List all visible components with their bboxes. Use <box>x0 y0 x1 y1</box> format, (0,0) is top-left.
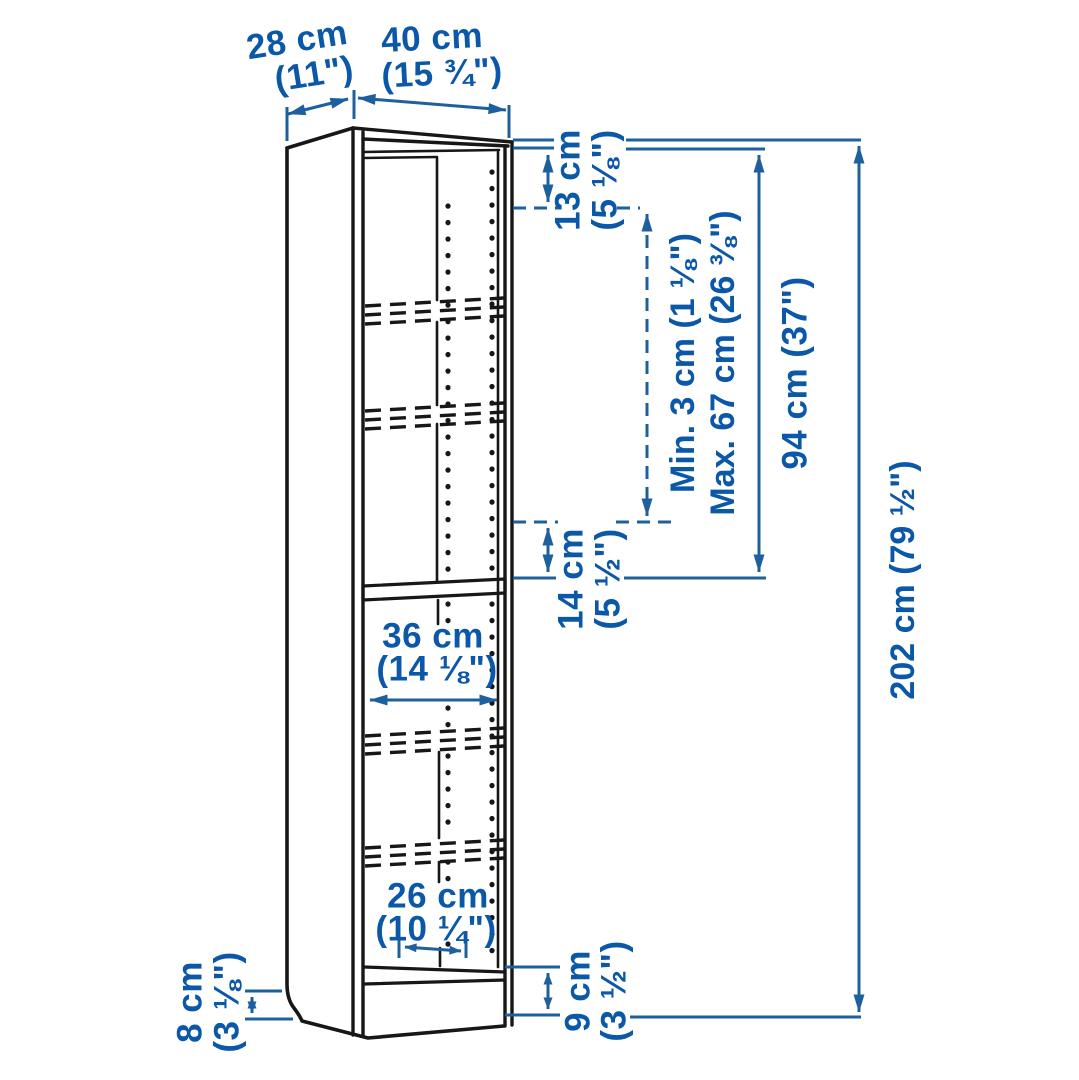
depth-arrow <box>288 99 348 114</box>
bookcase-dimension-diagram: 28 cm (11") 40 cm (15 ¾") 13 cm (5 ⅛") M… <box>0 0 1079 1080</box>
label-total-height: 202 cm (79 ½") <box>884 460 922 699</box>
adjustable-shelf-dashed-2 <box>365 403 504 429</box>
depth-extension-ticks <box>287 90 354 141</box>
label-inner-width-in: (14 ⅛") <box>376 650 497 689</box>
inner-ceiling-edges <box>363 150 499 158</box>
back-corner-line <box>437 158 440 966</box>
dim-plinth-left-8 <box>245 991 293 1019</box>
label-top-gap-cm: 13 cm <box>549 129 588 231</box>
width-arrow <box>358 98 506 110</box>
side-panel-top-edge <box>287 128 353 148</box>
dim-depth-28 <box>287 90 354 141</box>
label-shelf-gap-in: (5 ½") <box>589 528 628 629</box>
label-top-gap-in: (5 ⅛") <box>586 129 625 230</box>
label-shelf-max: Max. 67 cm (26 ⅜") <box>704 210 742 515</box>
label-plinth-right-cm: 9 cm <box>559 950 598 1032</box>
label-shelf-min: Min. 3 cm (1 ⅛") <box>664 233 702 493</box>
label-upper-section: 94 cm (37") <box>776 276 815 469</box>
top-panel-edges <box>353 128 512 146</box>
label-width-in: (15 ¾") <box>380 50 503 95</box>
dimension-labels: 28 cm (11") 40 cm (15 ¾") 13 cm (5 ⅛") M… <box>171 13 923 1053</box>
adjustable-shelf-dashed-3 <box>365 728 504 754</box>
front-left-edge <box>353 128 363 1036</box>
adjustable-shelf-dashed-4 <box>365 840 504 866</box>
label-shelf-gap-cm: 14 cm <box>552 528 591 630</box>
bottom-shelf <box>364 967 505 984</box>
label-bottom-depth-in: (10 ¼") <box>375 910 496 949</box>
dim-shelf-adjust-minmax <box>513 214 678 522</box>
label-plinth-left-in: (3 ⅛") <box>208 951 247 1052</box>
adjustable-shelf-dashed-1 <box>365 298 504 324</box>
fixed-middle-shelf <box>363 579 505 600</box>
label-plinth-right-in: (3 ½") <box>595 940 634 1041</box>
label-plinth-left-cm: 8 cm <box>171 961 210 1043</box>
